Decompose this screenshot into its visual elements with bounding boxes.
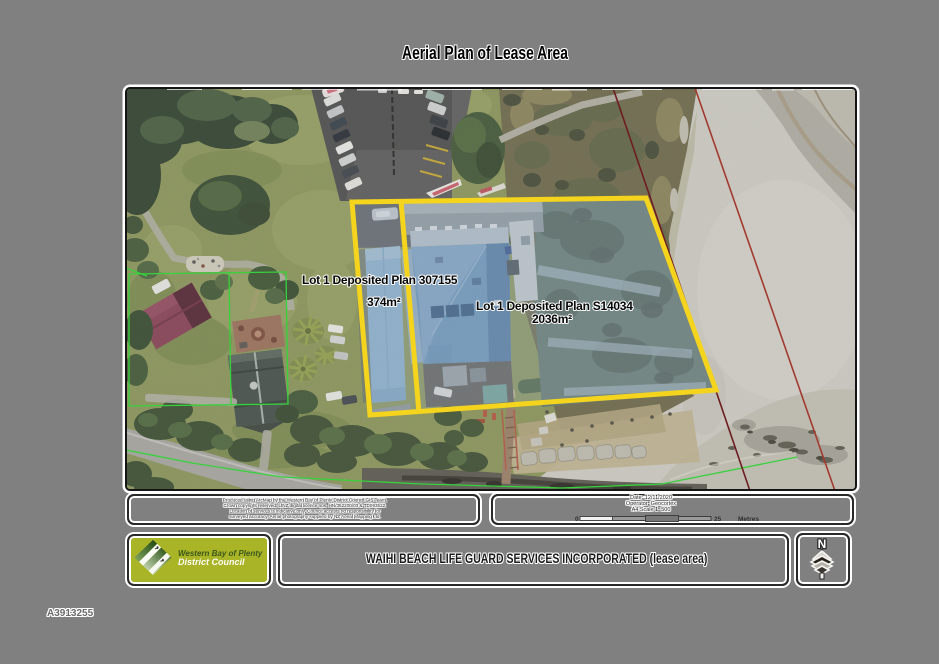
svg-text:374m²: 374m² [367,295,401,309]
svg-text:Lot 1 Deposited Plan S14034: Lot 1 Deposited Plan S14034 [476,299,633,313]
svg-text:Metres: Metres [738,516,759,523]
svg-text:25: 25 [714,516,722,523]
svg-text:2036m²: 2036m² [532,312,572,326]
svg-text:Lot 1 Deposited Plan 307155: Lot 1 Deposited Plan 307155 [302,273,458,287]
svg-text:0: 0 [575,516,579,523]
svg-text:N: N [818,537,827,551]
